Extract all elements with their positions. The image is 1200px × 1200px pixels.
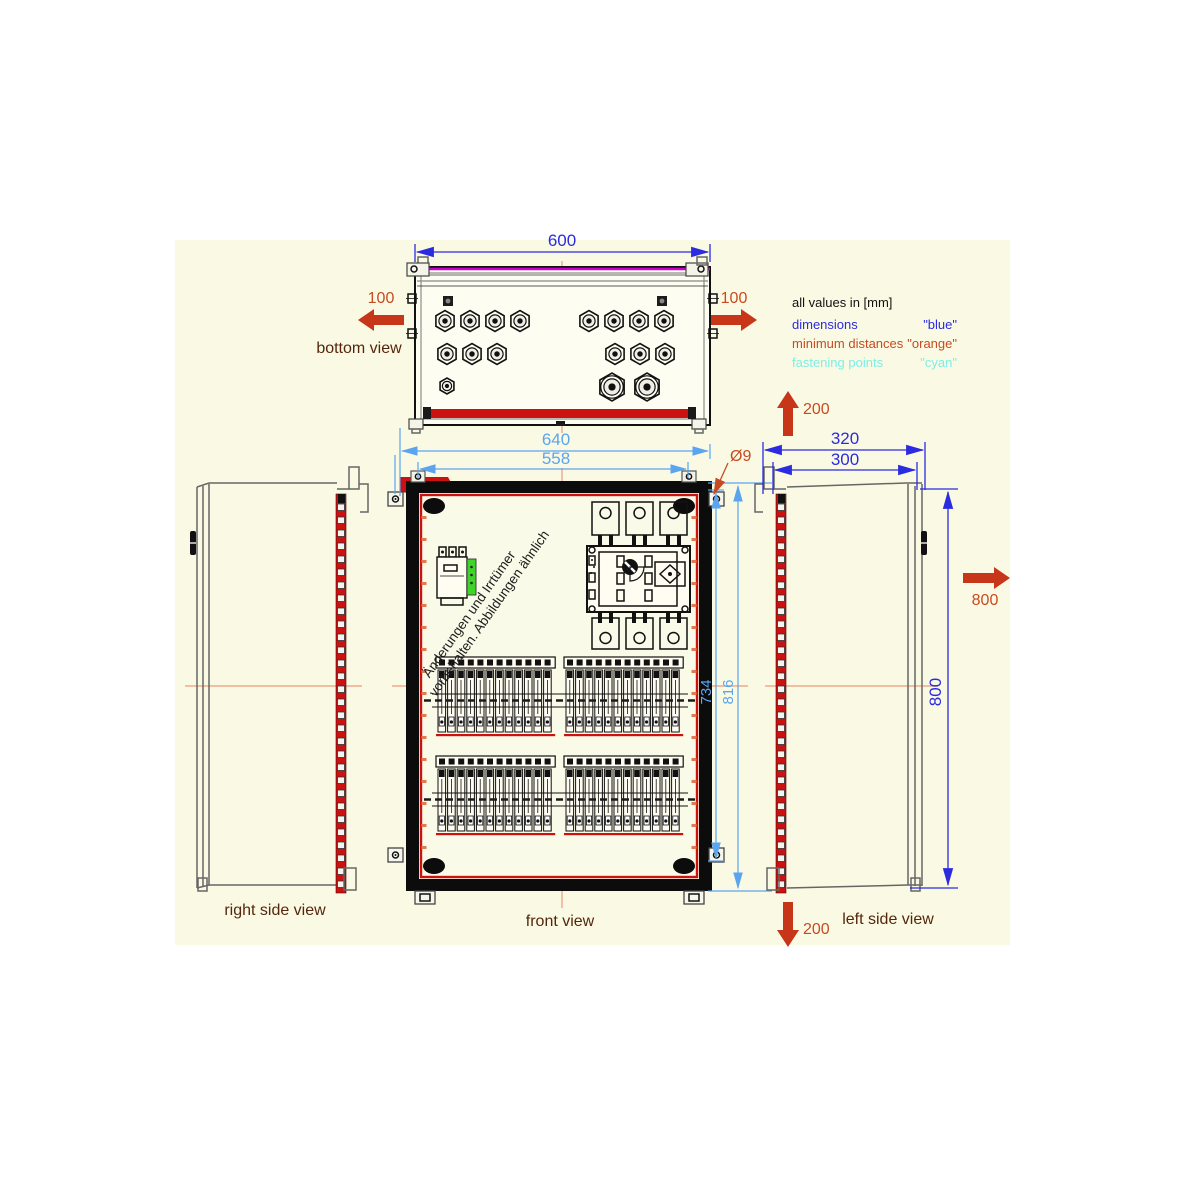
dim-text-hole-dia: Ø9 — [730, 448, 751, 465]
cable-gland — [606, 344, 624, 365]
hinge-knuckle — [778, 660, 785, 667]
hinge-knuckle — [338, 517, 345, 524]
hinge-knuckle — [338, 725, 345, 732]
hinge-knuckle — [338, 660, 345, 667]
hinge-knuckle — [778, 816, 785, 823]
cable-gland — [655, 311, 673, 332]
dim-text-734: 734 — [698, 679, 715, 704]
hinge-knuckle — [778, 530, 785, 537]
hinge-knuckle — [338, 842, 345, 849]
hinge-knuckle — [778, 595, 785, 602]
legend-min-distances: minimum distances — [792, 336, 904, 351]
hinge-knuckle — [778, 842, 785, 849]
dim-text-300: 300 — [831, 450, 859, 469]
hinge-knuckle — [338, 816, 345, 823]
hinge-knuckle — [338, 699, 345, 706]
red-rail — [427, 409, 688, 418]
label-bottom-view: bottom view — [316, 340, 402, 357]
legend-dimensions: dimensions — [792, 317, 858, 332]
hinge-knuckle — [338, 829, 345, 836]
dim-text-816: 816 — [720, 679, 737, 704]
cable-gland — [486, 311, 504, 332]
hinge-strip — [336, 494, 346, 893]
hinge-knuckle — [778, 725, 785, 732]
dim-text-800: 800 — [926, 678, 945, 706]
technical-drawing: 600 100 100 200 200 800 all values in [m… — [0, 0, 1200, 1200]
hinge-knuckle — [338, 582, 345, 589]
hinge-knuckle — [338, 764, 345, 771]
legend-dimensions-value: "blue" — [923, 317, 957, 332]
hinge-knuckle — [338, 777, 345, 784]
hinge-knuckle — [778, 543, 785, 550]
label-left-side-view: left side view — [842, 911, 934, 928]
cable-gland — [440, 378, 454, 394]
hinge-knuckle — [338, 686, 345, 693]
cable-gland — [605, 311, 623, 332]
legend-min-distances-value: "orange" — [907, 336, 957, 351]
legend-title: all values in [mm] — [792, 295, 892, 310]
cable-gland — [463, 344, 481, 365]
legend-fastening: fastening points — [792, 355, 884, 370]
dim-text-558: 558 — [542, 449, 570, 468]
hinge-knuckle — [778, 738, 785, 745]
cable-gland — [631, 344, 649, 365]
hinge-knuckle — [778, 855, 785, 862]
cable-gland — [511, 311, 529, 332]
hinge-knuckle — [338, 790, 345, 797]
hinge-knuckle — [778, 634, 785, 641]
hinge-knuckle — [778, 829, 785, 836]
hinge-knuckle — [338, 738, 345, 745]
drawing-page: 600 100 100 200 200 800 all values in [m… — [0, 0, 1200, 1200]
cable-gland — [461, 311, 479, 332]
cable-gland — [630, 311, 648, 332]
hinge-knuckle — [338, 855, 345, 862]
clearance-bottom-200: 200 — [803, 921, 830, 938]
hinge-knuckle — [778, 556, 785, 563]
hinge-knuckle — [338, 673, 345, 680]
hinge-knuckle — [338, 595, 345, 602]
cable-gland — [438, 344, 456, 365]
hinge-knuckle — [338, 647, 345, 654]
hinge-knuckle — [338, 504, 345, 511]
hinge-knuckle — [778, 504, 785, 511]
hinge-strip — [776, 494, 786, 893]
hinge-knuckle — [778, 790, 785, 797]
green-status-label — [467, 559, 476, 595]
hinge-knuckle — [338, 608, 345, 615]
cable-gland — [600, 373, 624, 401]
clearance-left-100: 100 — [368, 290, 395, 307]
hinge-knuckle — [778, 582, 785, 589]
bottom-view — [406, 257, 719, 433]
cable-gland — [436, 311, 454, 332]
cable-gland — [656, 344, 674, 365]
hinge-knuckle — [778, 621, 785, 628]
cable-gland — [635, 373, 659, 401]
cable-gland — [488, 344, 506, 365]
hinge-knuckle — [338, 556, 345, 563]
hinge-knuckle — [778, 712, 785, 719]
hinge-knuckle — [778, 699, 785, 706]
hinge-knuckle — [338, 634, 345, 641]
hinge-knuckle — [778, 569, 785, 576]
hinge-knuckle — [778, 517, 785, 524]
hinge-knuckle — [338, 751, 345, 758]
clearance-top-200: 200 — [803, 401, 830, 418]
hinge-knuckle — [778, 803, 785, 810]
hinge-knuckle — [778, 777, 785, 784]
hinge-knuckle — [778, 647, 785, 654]
front-view: Änderungen und Irrtümer vorbehalten. Abb… — [388, 468, 748, 908]
hinge-knuckle — [778, 764, 785, 771]
cable-gland — [580, 311, 598, 332]
hinge-knuckle — [778, 751, 785, 758]
hinge-knuckle — [778, 673, 785, 680]
label-right-side-view: right side view — [224, 902, 326, 919]
hinge-knuckle — [338, 543, 345, 550]
hinge-knuckle — [338, 712, 345, 719]
label-front-view: front view — [526, 913, 595, 930]
clearance-front-800: 800 — [972, 592, 999, 609]
dim-text-320: 320 — [831, 429, 859, 448]
hinge-knuckle — [778, 686, 785, 693]
hinge-knuckle — [338, 621, 345, 628]
hinge-knuckle — [338, 803, 345, 810]
hinge-knuckle — [778, 608, 785, 615]
hinge-knuckle — [338, 530, 345, 537]
hinge-knuckle — [338, 569, 345, 576]
dim-text-640: 640 — [542, 430, 570, 449]
legend-fastening-value: "cyan" — [920, 355, 957, 370]
dim-text-600: 600 — [548, 231, 576, 250]
clearance-right-100: 100 — [721, 290, 748, 307]
